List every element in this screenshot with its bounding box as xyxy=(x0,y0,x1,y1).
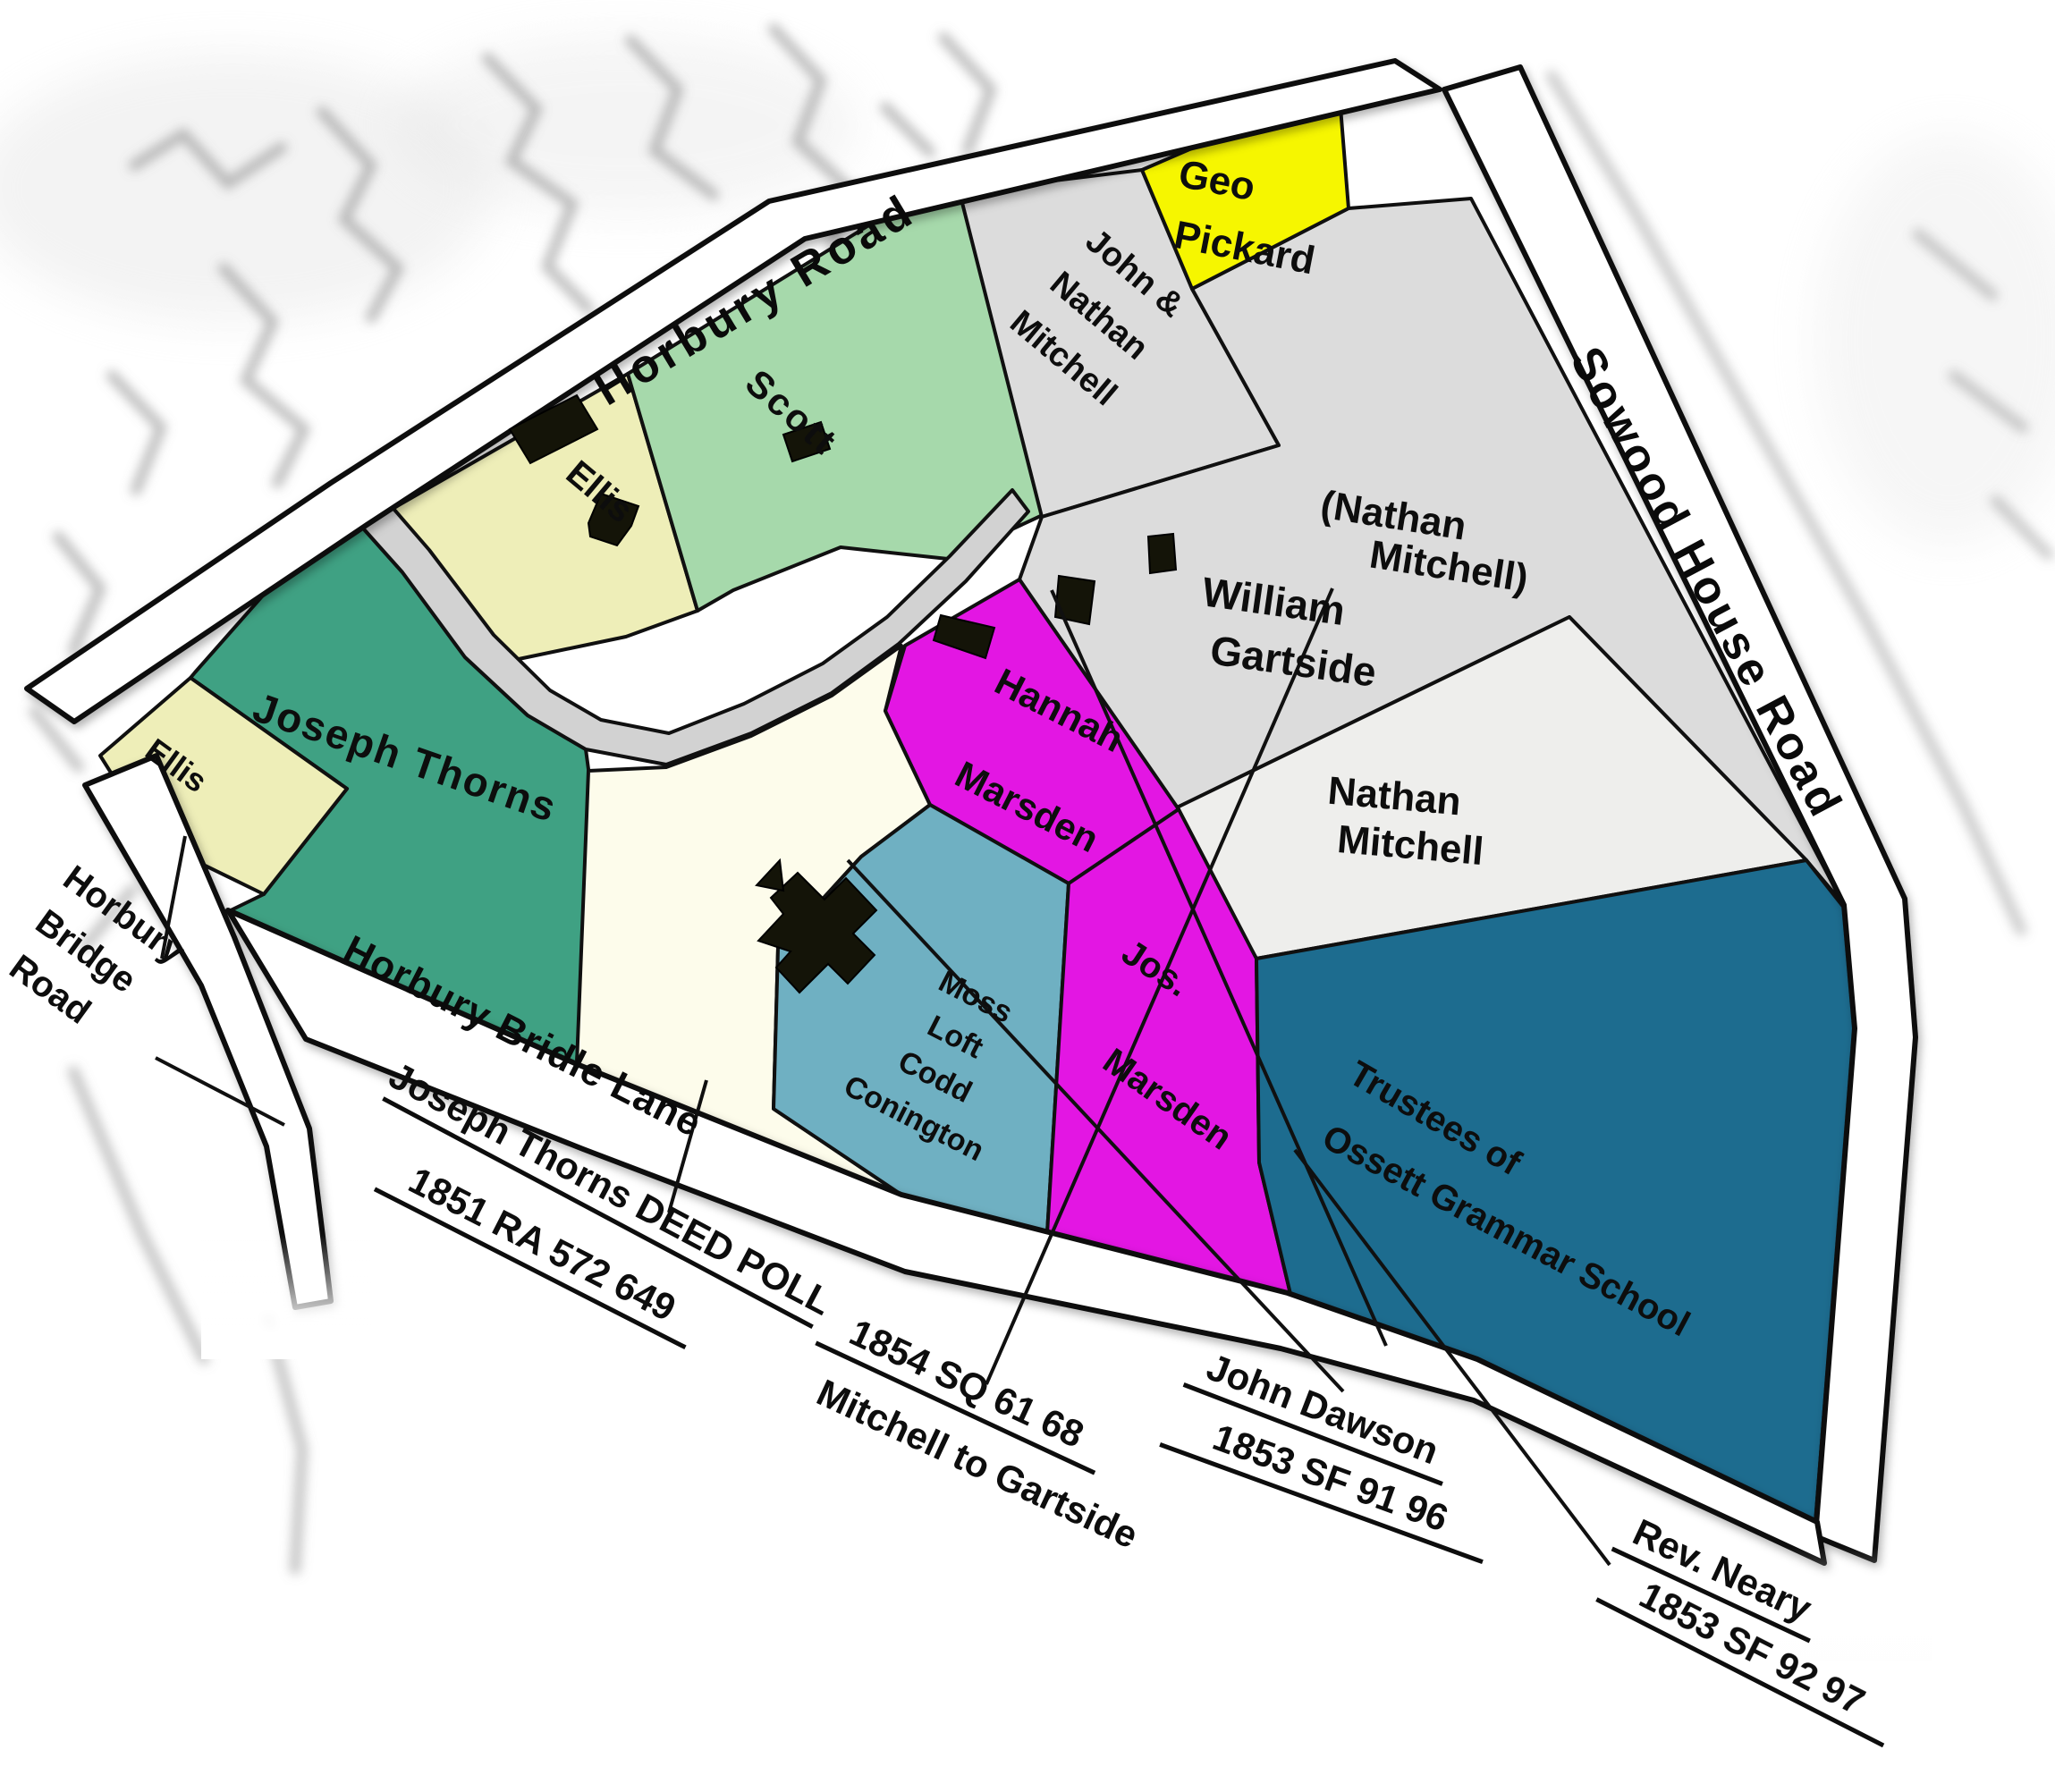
map-svg: Horbury Road Sowood House Road Horbury B… xyxy=(0,0,2055,1792)
building-boundary-barn xyxy=(1055,576,1095,624)
map-stage: Horbury Road Sowood House Road Horbury B… xyxy=(0,0,2055,1792)
building-gartside xyxy=(1148,534,1176,573)
